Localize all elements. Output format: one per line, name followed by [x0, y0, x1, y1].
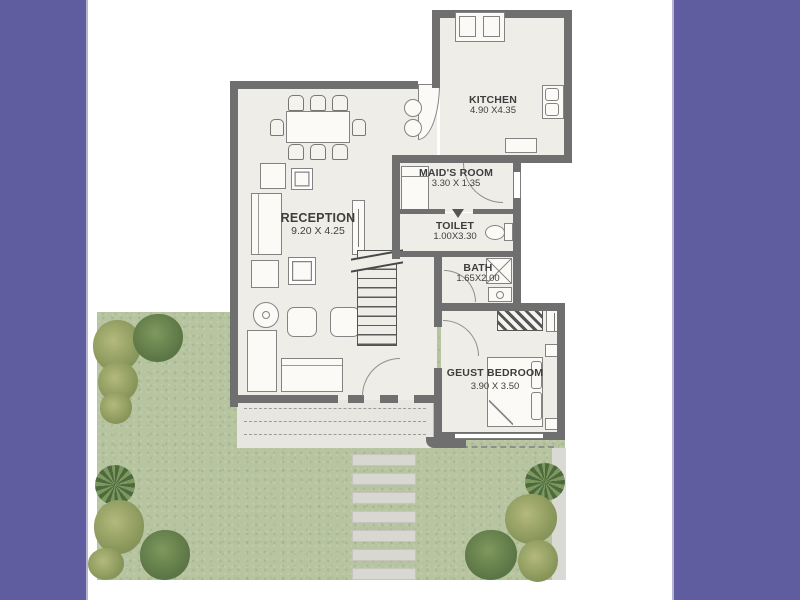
pillow-icon [531, 392, 542, 420]
maids-room-label: MAID'S ROOM 3.30 X 1.35 [400, 167, 512, 190]
dining-chair-icon [288, 144, 304, 160]
stepping-stone [352, 454, 416, 466]
tree-icon [133, 314, 183, 362]
pergola-line [244, 421, 426, 422]
bedroom-left-wall [434, 303, 442, 327]
room-dims: 3.30 X 1.35 [400, 179, 512, 190]
tree-icon [465, 530, 517, 580]
corner-sofa-icon [247, 330, 277, 392]
sofa-icon [281, 358, 343, 392]
stepping-stone [352, 549, 416, 561]
reception-left-wall [230, 81, 238, 407]
floor-lamp-icon [253, 302, 279, 328]
shrub-icon [88, 548, 124, 580]
dining-chair-icon [310, 144, 326, 160]
round-basin-icon [404, 119, 422, 137]
pergola-line [244, 434, 426, 435]
pergola-line [244, 408, 426, 409]
stepping-stone [352, 511, 416, 523]
room-dims: 9.20 X 4.25 [258, 225, 378, 237]
wc-tank-icon [504, 223, 513, 241]
reception-label: RECEPTION 9.20 X 4.25 [258, 211, 378, 237]
shrub-icon [94, 500, 144, 554]
armchair-icon [251, 260, 279, 288]
kitchen-left-wall [432, 10, 440, 88]
shrub-icon [505, 494, 557, 544]
cabinet-icon [291, 168, 313, 190]
reception-bottom-wall [380, 395, 398, 403]
bath-label: BATH 1.65X2.00 [441, 262, 515, 285]
sofa-seat-line [282, 365, 342, 366]
dining-chair-icon [352, 119, 366, 136]
stove-cooktop-icon [455, 12, 505, 42]
reception-bottom-wall [348, 395, 364, 403]
kitchen-counter [505, 138, 537, 153]
right-purple-band [672, 0, 800, 600]
wardrobe-icon [497, 310, 543, 331]
stepping-stone [352, 530, 416, 542]
reception-bottom-wall [230, 395, 338, 403]
shrub-icon [518, 540, 558, 582]
coffee-table-icon [287, 307, 317, 337]
round-basin-icon [404, 99, 422, 117]
dining-chair-icon [288, 95, 304, 111]
room-dims: 4.90 X4.35 [438, 106, 548, 117]
coffee-table-icon [330, 307, 360, 337]
room-name: RECEPTION [258, 211, 378, 225]
maids-toilet-wall [473, 209, 513, 214]
maids-room-top-wall [392, 155, 572, 163]
shrub-icon [100, 392, 132, 424]
blanket-fold-line [489, 400, 513, 425]
room-dims: 1.65X2.00 [441, 274, 515, 285]
toilet-door-icon [452, 209, 464, 218]
maids-room-window [513, 172, 521, 198]
dining-chair-icon [332, 144, 348, 160]
stepping-stone [352, 473, 416, 485]
maids-toilet-wall [399, 209, 445, 214]
burner-icon [483, 16, 500, 37]
burner-icon [459, 16, 476, 37]
floor-plan-page: RECEPTION 9.20 X 4.25 KITCHEN 4.90 X4.35… [0, 0, 800, 600]
dining-table-icon [286, 111, 350, 143]
bedroom-right-wall [557, 303, 565, 440]
room-dims: 1.00X3.30 [410, 232, 500, 243]
kitchen-label: KITCHEN 4.90 X4.35 [438, 94, 548, 117]
garden-boundary-dashed-line [462, 446, 554, 448]
bedroom-top-wall [434, 303, 565, 311]
palm-plant-icon [95, 465, 135, 505]
basin-bowl-icon [496, 291, 504, 299]
toilet-bath-wall [399, 251, 513, 257]
side-table-icon [288, 257, 316, 285]
terrace [237, 399, 433, 448]
tree-icon [140, 530, 190, 580]
left-purple-band [0, 0, 88, 600]
bedroom-window [455, 433, 543, 439]
stepping-stone [352, 492, 416, 504]
dining-chair-icon [332, 95, 348, 111]
wash-basin-icon [488, 287, 512, 302]
room-dims: 3.90 X 3.50 [432, 382, 558, 393]
reception-top-wall [230, 81, 418, 89]
dining-chair-icon [310, 95, 326, 111]
lamp-center-dot [262, 311, 270, 319]
room-name: GEUST BEDROOM [432, 367, 558, 379]
stepping-stone [352, 568, 416, 580]
guest-bedroom-label: GEUST BEDROOM 3.90 X 3.50 [432, 367, 558, 393]
kitchen-right-wall [564, 10, 572, 163]
dining-chair-icon [270, 119, 284, 136]
cabinet-icon [260, 163, 286, 189]
reception-maids-wall [392, 155, 400, 259]
reception-bottom-wall [414, 395, 441, 403]
hanger-rod-line [554, 313, 555, 331]
toilet-label: TOILET 1.00X3.30 [410, 220, 500, 243]
